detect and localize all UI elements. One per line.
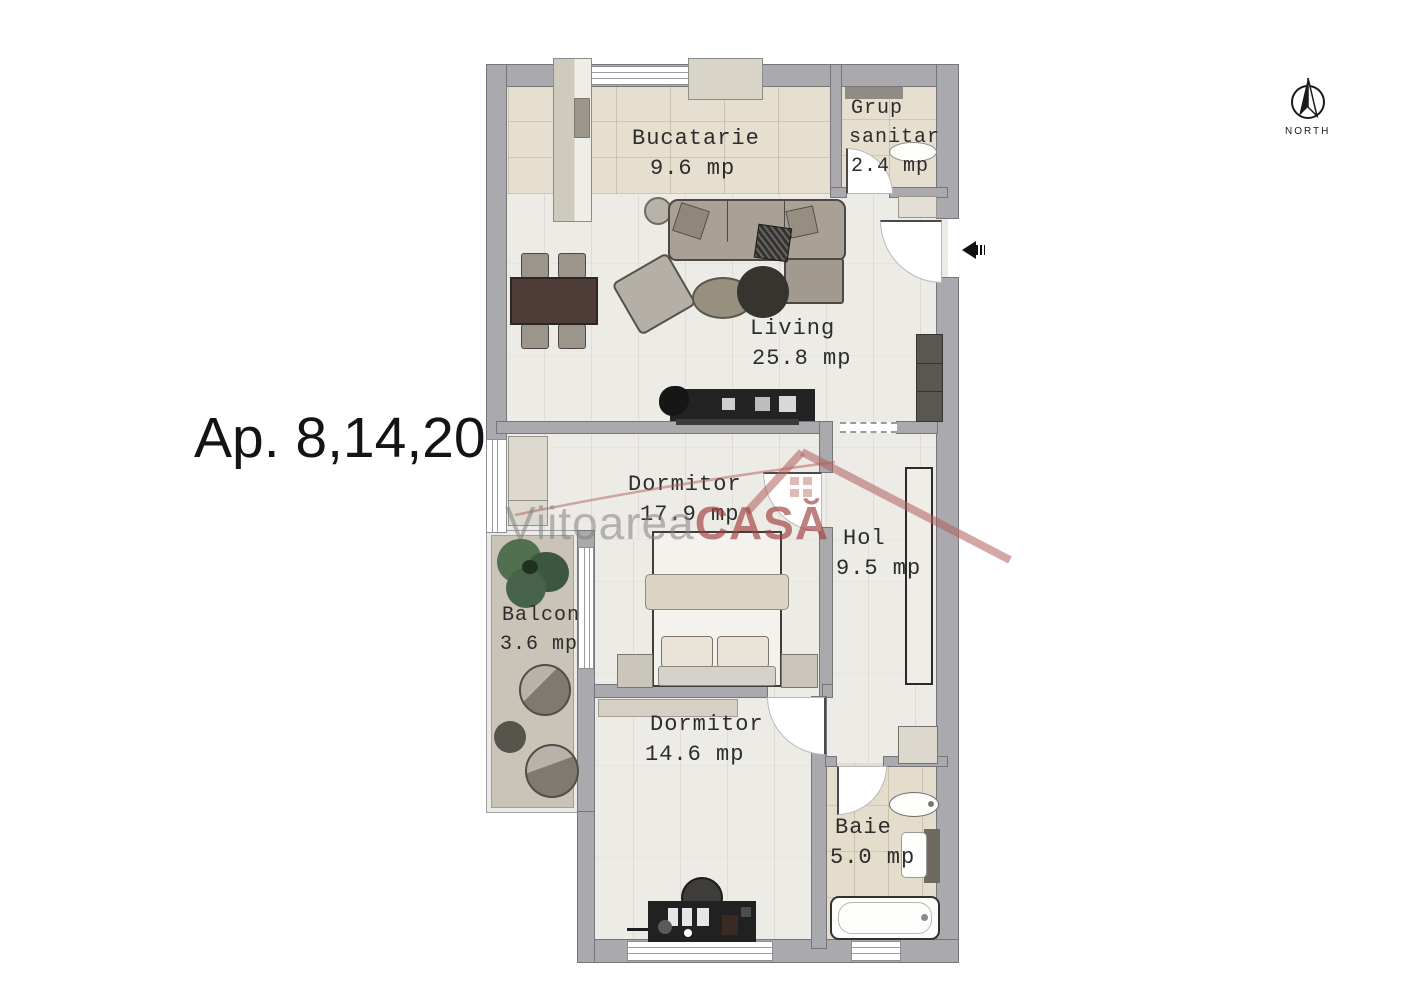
floor-plan-page: Bucatarie 9.6 mp Grup sanitar 2.4 mp Liv… <box>0 0 1418 1002</box>
wall-dormitor-hol-lower <box>820 528 832 697</box>
window-kitchen-top <box>578 67 698 84</box>
apartment-title: Ap. 8,14,20 <box>194 405 486 471</box>
desk-item-dark <box>722 915 738 935</box>
label-living: Living 25.8 mp <box>750 314 851 374</box>
entrance-arrow-icon <box>962 241 976 259</box>
room-area: 5.0 mp <box>830 843 915 873</box>
north-compass-icon <box>1278 72 1338 124</box>
nightstand <box>781 654 818 688</box>
room-area: 14.6 mp <box>645 740 764 770</box>
tv-bar <box>676 419 799 425</box>
console-item <box>779 396 796 412</box>
wall-dormitor1-dormitor2-b <box>823 685 832 697</box>
room-name: sanitar <box>849 123 940 152</box>
desk-item <box>682 908 692 926</box>
label-baie: Baie 5.0 mp <box>835 813 915 873</box>
nightstand <box>617 654 653 688</box>
balcony-chair <box>525 744 579 798</box>
bed-blanket <box>645 574 789 610</box>
entry-cabinet <box>898 196 937 218</box>
dining-table <box>510 277 598 325</box>
label-grup-sanitar: Grup sanitar 2.4 mp <box>851 94 940 181</box>
label-dormitor-mic: Dormitor 14.6 mp <box>650 710 764 770</box>
room-name: Living <box>750 314 851 344</box>
room-name: Bucatarie <box>632 124 760 154</box>
dining-chair <box>558 253 586 278</box>
room-name: Balcon <box>502 601 580 630</box>
label-hol: Hol 9.5 mp <box>843 524 921 584</box>
wall-kitchen-grup-divider <box>831 65 841 197</box>
kitchen-cabinet-top <box>688 58 763 100</box>
hall-dark-cabinet <box>916 334 943 422</box>
kitchen-counter-left <box>553 58 592 222</box>
dining-chair <box>521 324 549 349</box>
sofa-pillow-dark <box>754 224 792 262</box>
wall-dormitor2-left <box>578 811 594 962</box>
wall-living-dormitor-b <box>897 422 937 433</box>
desk-item-small <box>741 907 751 917</box>
dining-chair <box>521 253 549 278</box>
hol-shoe-cabinet <box>898 726 938 764</box>
watermark-text: ViitoareaCASĂ <box>505 496 829 550</box>
label-bucatarie: Bucatarie 9.6 mp <box>632 124 760 184</box>
bathtub-inner <box>838 902 932 934</box>
desk-item <box>697 908 709 926</box>
room-area: 9.5 mp <box>836 554 921 584</box>
entrance-arrow-tail <box>976 245 985 255</box>
window-balcony <box>579 548 593 668</box>
wall-grup-bottom-a <box>831 188 846 197</box>
sofa-chaise <box>784 258 844 304</box>
balcony-table <box>494 721 526 753</box>
watermark-brand-gray: Viitoarea <box>505 497 695 549</box>
room-name: Hol <box>843 524 921 554</box>
watermark-brand-red: CASĂ <box>695 497 829 549</box>
bathtub-drain <box>921 914 928 921</box>
wall-baie-top-a <box>826 757 836 766</box>
room-name: Baie <box>835 813 915 843</box>
room-area: 25.8 mp <box>752 344 851 374</box>
room-name: Dormitor <box>650 710 764 740</box>
dining-chair <box>558 324 586 349</box>
balcony-plant-center <box>522 560 538 574</box>
console-item <box>755 397 770 411</box>
window-baie-bottom <box>852 942 900 960</box>
wall-left-upper <box>487 65 506 440</box>
bed-pillow <box>717 636 769 668</box>
coffee-table-round <box>737 266 789 318</box>
desk-knob <box>658 920 672 934</box>
room-area: 3.6 mp <box>500 630 580 659</box>
window-dormitor2-bottom <box>628 942 772 960</box>
room-area: 9.6 mp <box>650 154 760 184</box>
bed-headboard-bench <box>658 666 776 686</box>
kitchen-sink <box>574 98 590 138</box>
desk-dot <box>684 929 692 937</box>
hol-living-vent-opening <box>840 422 897 433</box>
label-balcon: Balcon 3.6 mp <box>502 601 580 659</box>
room-name: Grup <box>851 94 940 123</box>
bed-pillow <box>661 636 713 668</box>
toilet-button <box>928 801 934 807</box>
console-item <box>722 398 735 410</box>
room-area: 2.4 mp <box>851 152 940 181</box>
wall-dormitor-hol-upper <box>820 422 832 472</box>
window-left-dormitor <box>487 440 506 532</box>
balcony-chair <box>519 664 571 716</box>
north-label: NORTH <box>1285 126 1330 137</box>
